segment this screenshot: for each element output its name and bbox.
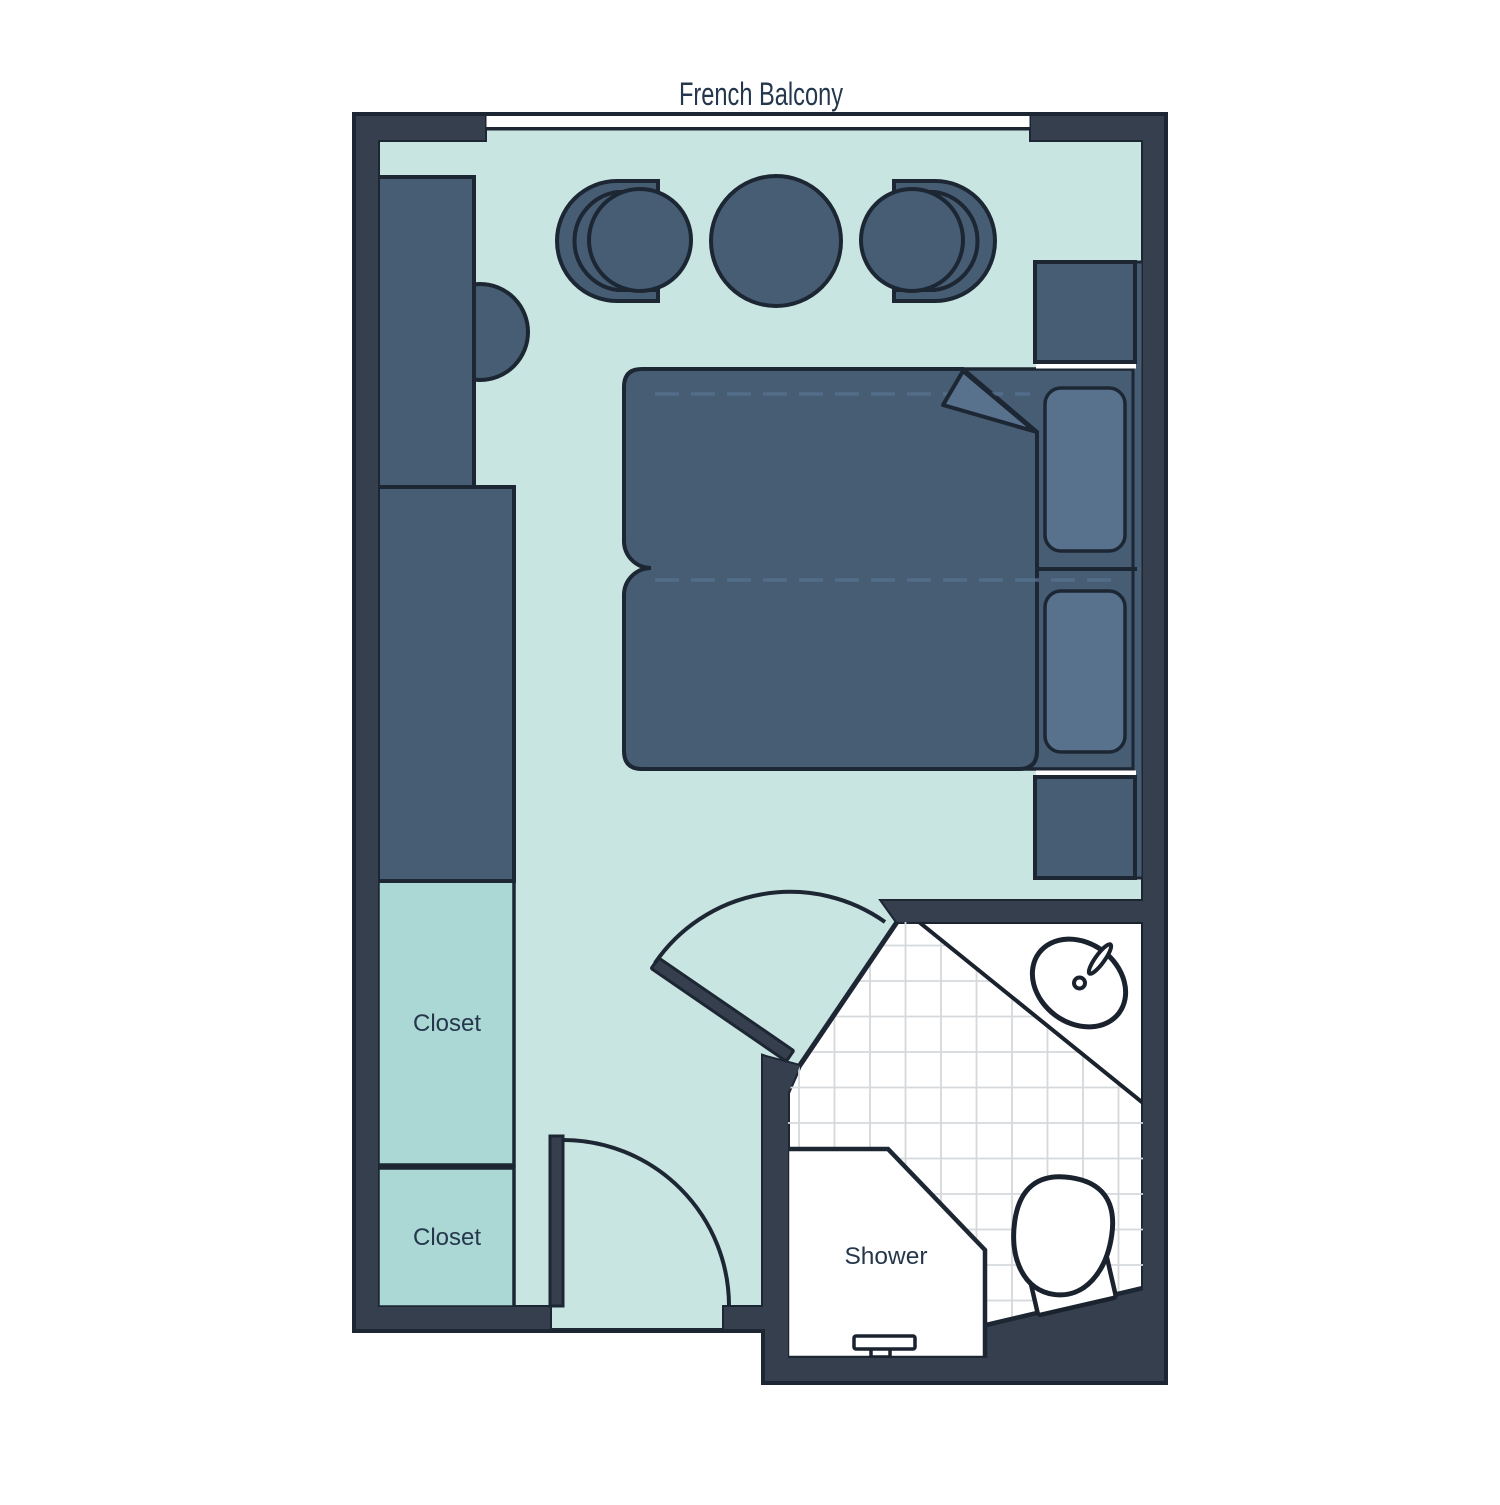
svg-text:Closet: Closet	[413, 1010, 481, 1037]
svg-text:Shower: Shower	[844, 1243, 927, 1270]
svg-text:Closet: Closet	[413, 1224, 481, 1251]
svg-text:French Balcony: French Balcony	[679, 76, 843, 112]
